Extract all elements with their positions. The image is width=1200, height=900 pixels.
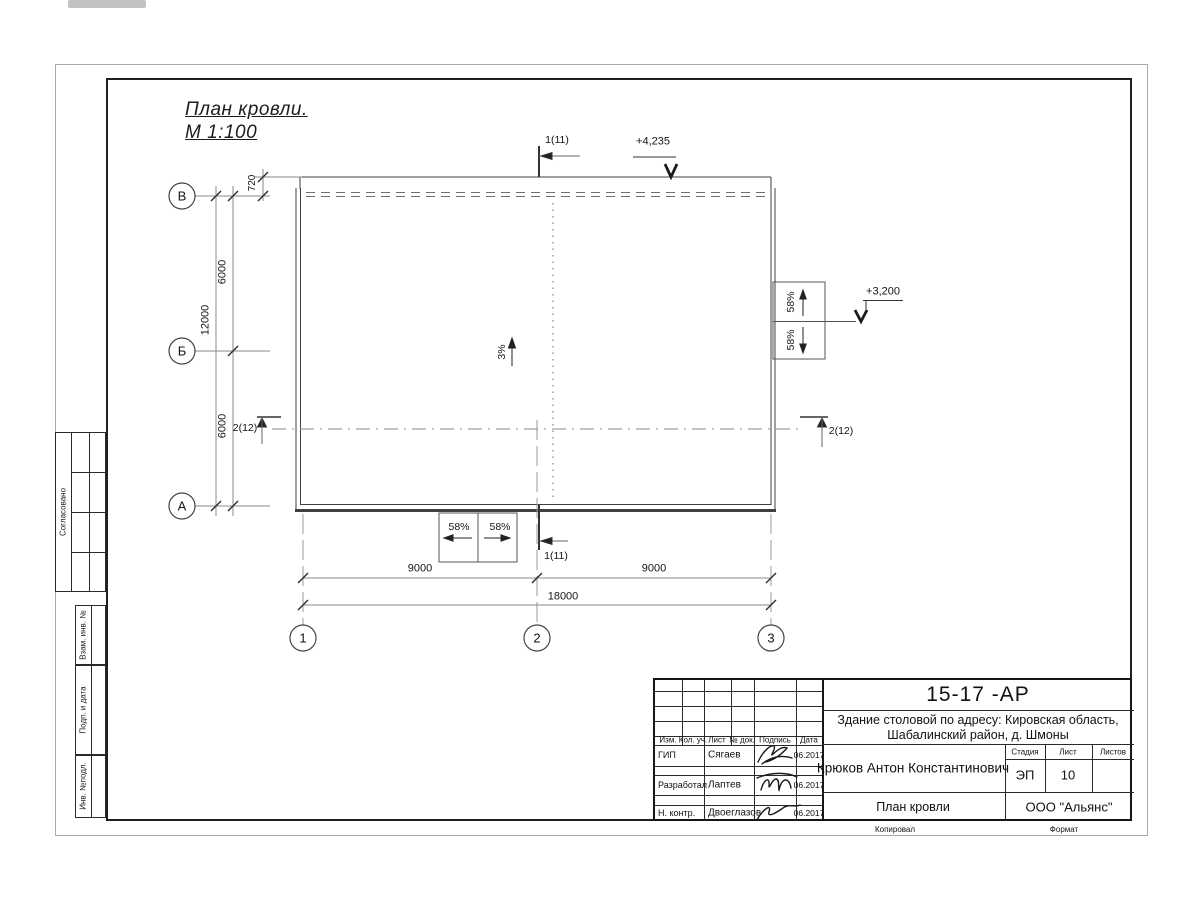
tb-project-line1: Здание столовой по адресу: Кировская обл… [837,713,1118,727]
drawing-title-scale: М 1:100 [185,122,257,144]
section-2-label-right: 2(12) [829,426,854,437]
dim-9000-right: 9000 [642,564,666,575]
tb-project-line2: Шабалинский район, д. Шмоны [887,728,1068,742]
dim-9000-left: 9000 [408,564,432,575]
dim-18000: 18000 [548,592,579,603]
signature-ncontr [757,805,800,820]
axis-col-3: 3 [767,632,774,645]
tb-stage-label: Стадия [1011,748,1038,757]
axis-col-1: 1 [299,632,306,645]
slope-canopy-right-down: 58% [786,329,797,350]
dim-720: 720 [248,175,258,192]
inv-orig-label: Инв. №подл. [79,762,88,810]
tb-author: Крюков Антон Константинович [817,761,1009,776]
axis-lines [303,420,771,625]
slope-arrows [444,290,806,541]
tb-stage-value: ЭП [1016,768,1035,783]
axis-row-v: В [178,190,187,203]
title-block: Изм. Кол. уч. Лист № док. Подпись Дата Г… [653,678,1132,821]
elevation-roof: +4,235 [636,137,670,148]
section-1-label-bottom: 1(11) [544,551,568,562]
tb-sheet-value: 10 [1061,768,1075,783]
building-outline [295,177,776,512]
section-1-label-top: 1(11) [545,135,569,146]
footer-format: Формат [1050,826,1078,834]
sign-date-label: Подп. и дата [79,686,88,733]
slope-canopy-bottom-left: 58% [448,522,469,533]
approval-block-label: Согласовано [59,488,68,536]
axis-col-2: 2 [533,632,540,645]
dim-12000: 12000 [201,305,212,336]
dimension-lines [195,169,771,605]
dim-6000-bottom: 6000 [218,414,229,438]
slope-canopy-right-up: 58% [786,291,797,312]
tb-company: ООО "Альянс" [1026,800,1113,815]
parapet-hidden-line [306,193,766,197]
replace-inv-label: Взам. инв. № [79,610,88,660]
signature-gip [758,746,792,764]
axis-row-b: Б [178,345,187,358]
tb-sheets-label: Листов [1100,748,1126,757]
elevation-marks [633,157,903,322]
axis-row-a: А [178,500,187,513]
tb-sheet-label: Лист [1059,748,1076,757]
slope-canopy-bottom-right: 58% [489,522,510,533]
slope-main-label: 3% [497,344,508,359]
elevation-canopy: +3,200 [866,287,900,298]
drawing-sheet: План кровли. М 1:100 720 6000 12000 6000… [0,0,1200,900]
tb-drawing-name: План кровли [876,800,950,814]
signature-dev [757,773,797,790]
dim-6000-top: 6000 [218,260,229,284]
footer-copied: Копировал [875,826,915,834]
section-2-label-left: 2(12) [233,423,258,434]
section-markers [257,146,828,550]
tb-doc-number: 15-17 -АР [926,683,1030,707]
drawing-title-line1: План кровли. [185,99,308,121]
